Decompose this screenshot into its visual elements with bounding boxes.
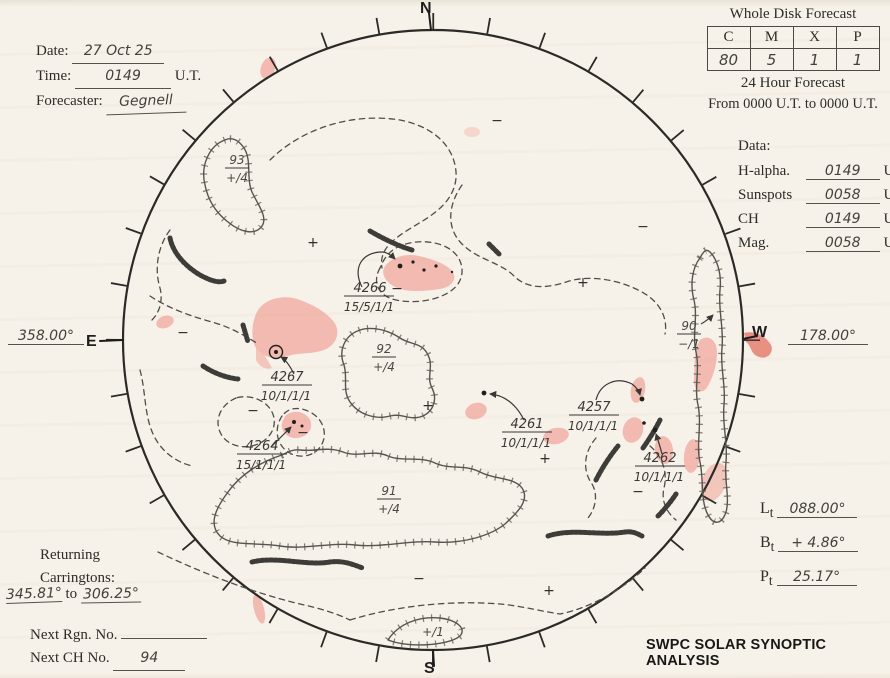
header-block: Date: 27 Oct 25 Time: 0149 U.T. Forecast… (36, 40, 201, 115)
data-title: Data: (738, 138, 890, 155)
east-longitude-value: 358.00° (8, 328, 84, 345)
east-longitude: 358.00° (8, 327, 84, 345)
date-field[interactable]: 27 Oct 25 (72, 40, 164, 64)
sunspots-label: Sunspots (738, 187, 802, 204)
forecast-val-m[interactable]: 5 (750, 49, 793, 71)
ch-label: CH (738, 211, 802, 228)
halpha-unit: U.T. (884, 163, 890, 179)
time-unit: U.T. (175, 68, 201, 84)
ch-number: 90 (681, 319, 697, 333)
ch-polarity: +/4 (378, 502, 400, 516)
plus-mark: + (577, 275, 589, 291)
ch-polarity: +/4 (226, 171, 248, 185)
east-label: E (86, 333, 97, 351)
plage-patches (154, 55, 732, 625)
returning-line1: Returning (40, 544, 115, 567)
next-rgn-label: Next Rgn. No. (30, 627, 118, 643)
forecaster-signature[interactable]: Gegnell (106, 89, 187, 116)
limb-tick-marks (114, 21, 752, 659)
forecaster-label: Forecaster: (36, 93, 103, 109)
west-label: W (752, 324, 767, 342)
mag-field[interactable]: 0058 (806, 235, 880, 252)
minus-mark: − (247, 403, 259, 419)
region-number: 4261 (510, 417, 543, 432)
forecast-col-m: M (750, 27, 793, 49)
returning-block: Returning Carringtons: (40, 544, 115, 590)
region-number: 4257 (577, 400, 611, 415)
next-numbers-block: Next Rgn. No. Next CH No. 94 (30, 624, 207, 671)
neutral-lines (140, 118, 676, 620)
sunspots-field[interactable]: 0058 (806, 187, 880, 204)
carrington-from-field[interactable]: 345.81° (6, 585, 63, 604)
region-counts: 10/1/1/1 (261, 389, 311, 403)
minus-mark: − (177, 325, 189, 341)
minus-mark: − (297, 425, 309, 441)
region-number: 4262 (643, 451, 676, 466)
region-counts: 10/1/1/1 (634, 470, 684, 484)
plus-mark: + (539, 451, 551, 467)
minus-mark: − (491, 113, 503, 129)
ch-field[interactable]: 0149 (806, 211, 880, 228)
forecast-table: C M X P 80 5 1 1 (707, 26, 880, 71)
lt-label: Lt (760, 500, 773, 517)
ch-number: 93 (229, 153, 244, 167)
forecast-val-x[interactable]: 1 (793, 49, 836, 71)
carrington-range: 345.81° to 306.25° (6, 586, 141, 603)
west-longitude-value: 178.00° (788, 328, 868, 345)
north-label: N (420, 0, 432, 18)
data-block: Data: H-alpha. 0149 U.T. Sunspots 0058 U… (738, 138, 890, 259)
region-counts: 10/1/1/1 (568, 419, 618, 433)
halpha-field[interactable]: 0149 (806, 163, 880, 180)
region-number: 4267 (270, 370, 304, 385)
halpha-label: H-alpha. (738, 163, 802, 180)
minus-mark: − (632, 484, 644, 500)
region-number: 4266 (353, 281, 386, 296)
date-label: Date: (36, 43, 68, 59)
region-counts: 10/1/1/1 (501, 436, 551, 450)
plus-mark: + (543, 583, 555, 599)
time-field[interactable]: 0149 (75, 65, 171, 89)
forecast-col-x: X (793, 27, 836, 49)
next-rgn-field[interactable] (121, 638, 207, 639)
pt-field[interactable]: 25.17° (777, 569, 857, 586)
forecast-val-p[interactable]: 1 (836, 49, 879, 71)
west-longitude: 178.00° (788, 327, 868, 345)
next-ch-label: Next CH No. (30, 650, 110, 666)
ch-unit: U.T. (884, 211, 890, 227)
ch-polarity: +/4 (373, 360, 395, 374)
plus-mark: + (422, 398, 434, 414)
minus-mark: − (637, 219, 649, 235)
form-brand-title: SWPC SOLAR SYNOPTIC ANALYSIS (646, 637, 890, 669)
carrington-to-word: to (66, 586, 78, 602)
forecast-subtitle: 24 Hour Forecast (699, 75, 887, 92)
plus-mark: + (307, 235, 319, 251)
minus-mark: − (391, 281, 403, 297)
ch-polarity: −/1 (678, 337, 700, 351)
region-counts: 15/1/1/1 (236, 458, 286, 472)
lt-field[interactable]: 088.00° (777, 501, 857, 518)
minus-mark: − (413, 571, 425, 587)
sunspots-unit: U.T. (884, 187, 890, 203)
forecast-val-c[interactable]: 80 (707, 49, 750, 71)
ch-number: 92 (376, 342, 391, 356)
forecast-title: Whole Disk Forecast (699, 6, 887, 23)
south-label: S (424, 660, 435, 678)
time-label: Time: (36, 68, 71, 84)
ch-number: 91 (381, 484, 396, 498)
bt-field[interactable]: + 4.86° (778, 535, 858, 552)
region-counts: 15/5/1/1 (344, 300, 394, 314)
ephemeris-block: Lt 088.00° Bt + 4.86° Pt 25.17° (760, 500, 858, 603)
ch-polarity: +/1 (422, 625, 444, 639)
forecast-block: Whole Disk Forecast C M X P 80 5 1 1 24 … (699, 6, 887, 113)
region-number: 4264 (245, 439, 278, 454)
mag-label: Mag. (738, 235, 802, 252)
mag-unit: U.T. (884, 235, 890, 251)
bt-label: Bt (760, 534, 774, 551)
pt-label: Pt (760, 568, 773, 585)
carrington-to-field[interactable]: 306.25° (81, 585, 141, 603)
solar-limb-circle (123, 30, 743, 650)
forecast-col-c: C (707, 27, 750, 49)
synoptic-form-page: + + + + + − − − − − − − − 93 +/4 92 +/4 … (0, 0, 890, 678)
forecast-col-p: P (836, 27, 879, 49)
forecast-range: From 0000 U.T. to 0000 U.T. (699, 96, 887, 113)
next-ch-field[interactable]: 94 (113, 647, 185, 671)
polarity-marks: + + + + + − − − − − − − − (177, 113, 649, 599)
annotation-arrows (272, 252, 713, 454)
